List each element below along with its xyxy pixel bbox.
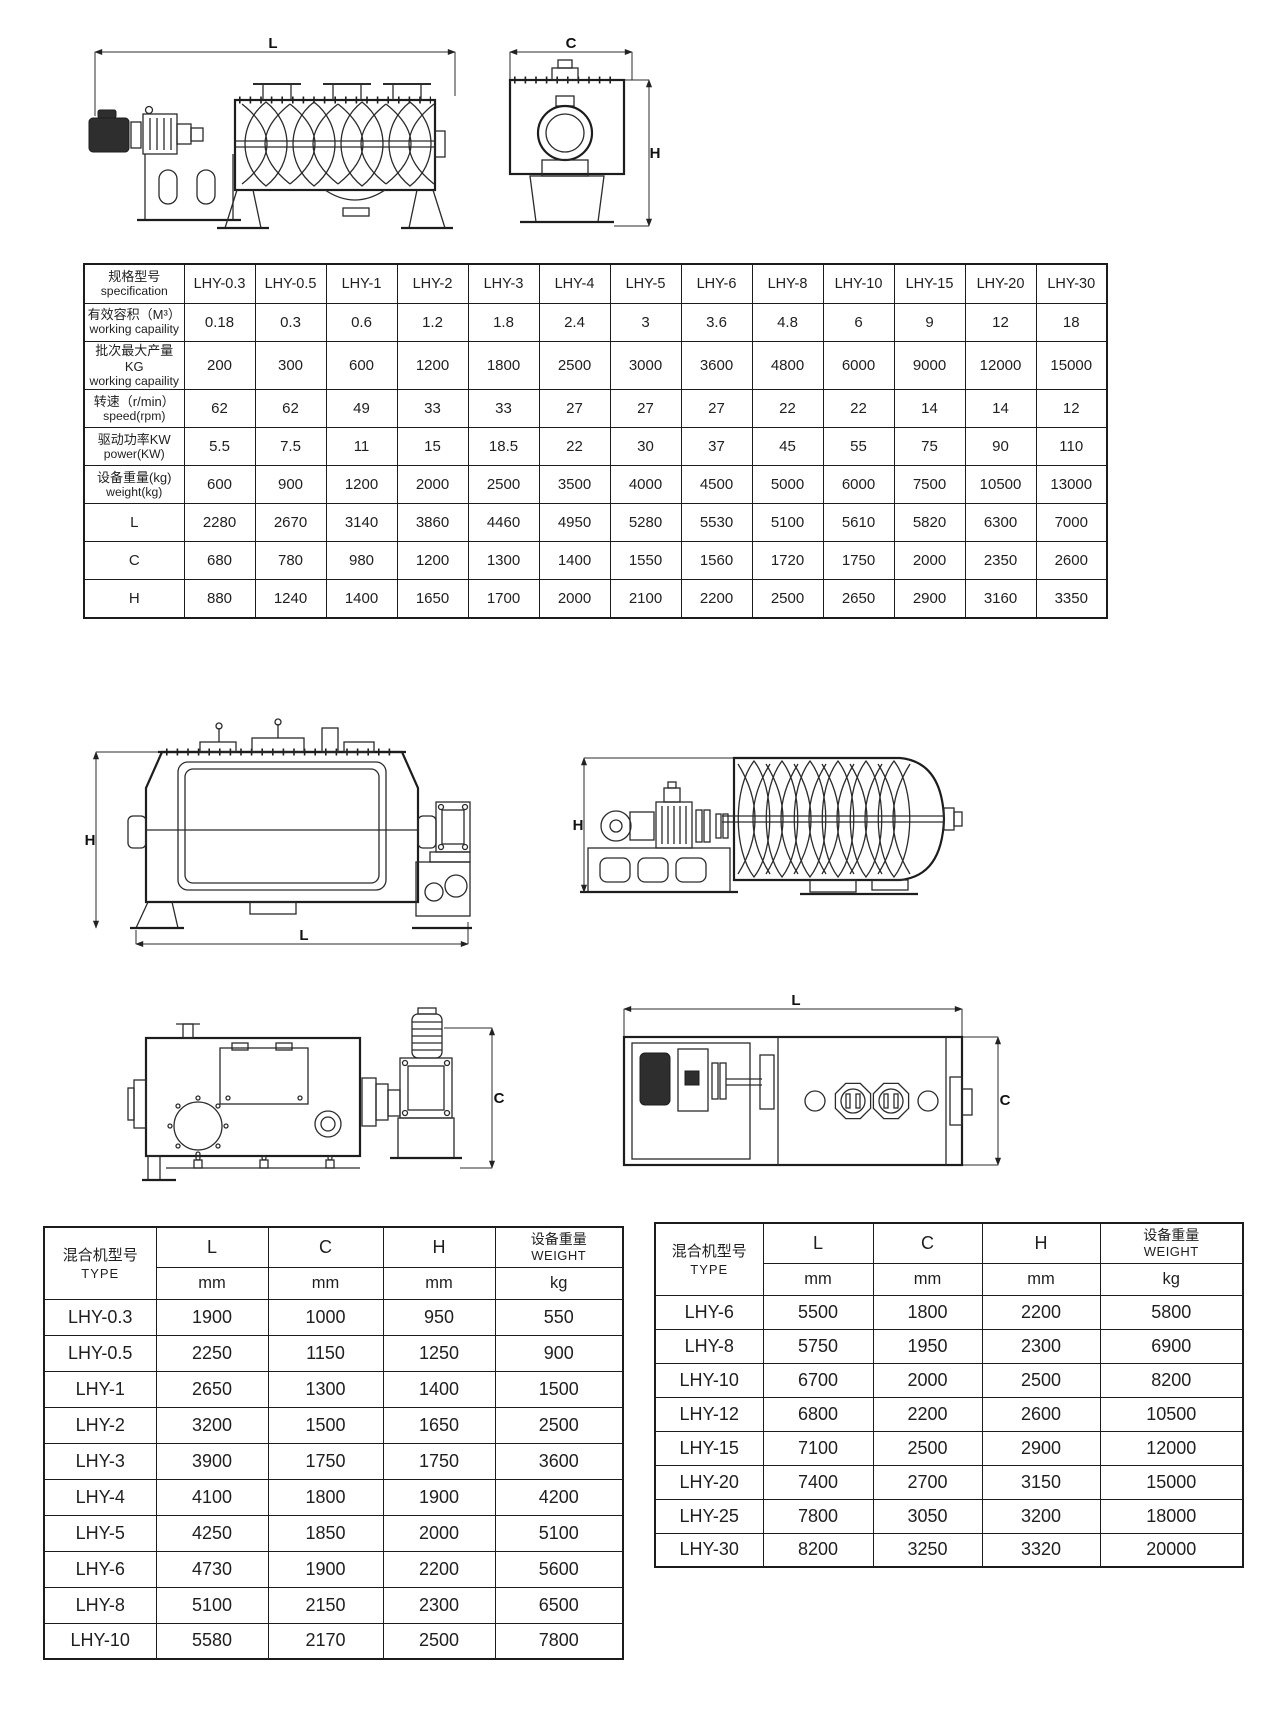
value-cell: 6900 — [1100, 1329, 1243, 1363]
dim-col-l: L — [156, 1227, 268, 1267]
spec-value-cell: 62 — [255, 390, 326, 428]
dim-label-width: C — [494, 1090, 505, 1107]
dimension-table-right: 混合机型号TYPELCH设备重量WEIGHTmmmmmmkgLHY-655001… — [654, 1222, 1244, 1568]
spec-value-cell: 3.6 — [681, 303, 752, 341]
spec-value-cell: 110 — [1036, 428, 1107, 466]
dim-label-width: C — [566, 35, 577, 52]
spec-corner-cell: 规格型号specification — [84, 264, 184, 303]
table-row: LHY-1268002200260010500 — [655, 1397, 1243, 1431]
spec-data-row: 有效容积（M³）working capaility0.180.30.61.21.… — [84, 303, 1107, 341]
spec-value-cell: 12000 — [965, 341, 1036, 390]
model-cell: LHY-0.3 — [44, 1299, 156, 1335]
spec-value-cell: 18 — [1036, 303, 1107, 341]
spec-value-cell: 2.4 — [539, 303, 610, 341]
datasheet-page: L — [0, 0, 1280, 1729]
model-cell: LHY-5 — [44, 1515, 156, 1551]
spec-value-cell: 27 — [610, 390, 681, 428]
value-cell: 2000 — [873, 1363, 982, 1397]
spec-header-row: 规格型号specificationLHY-0.3LHY-0.5LHY-1LHY-… — [84, 264, 1107, 303]
value-cell: 2200 — [383, 1551, 495, 1587]
dim-type-header: 混合机型号TYPE — [44, 1227, 156, 1299]
value-cell: 5100 — [495, 1515, 623, 1551]
table-row: LHY-2074002700315015000 — [655, 1465, 1243, 1499]
value-cell: 18000 — [1100, 1499, 1243, 1533]
table-row: LHY-2578003050320018000 — [655, 1499, 1243, 1533]
spec-row-label: H — [84, 580, 184, 618]
drawing-top-end-view: C H — [494, 36, 662, 236]
model-cell: LHY-3 — [44, 1443, 156, 1479]
value-cell: 1900 — [383, 1479, 495, 1515]
spec-value-cell: 880 — [184, 580, 255, 618]
spec-value-cell: 27 — [681, 390, 752, 428]
value-cell: 2500 — [383, 1623, 495, 1659]
spec-value-cell: 900 — [255, 466, 326, 504]
value-cell: 2900 — [982, 1431, 1100, 1465]
dim-header-row: 混合机型号TYPELCH设备重量WEIGHT — [44, 1227, 623, 1267]
motor-icon — [640, 1053, 670, 1105]
table-row: LHY-65500180022005800 — [655, 1295, 1243, 1329]
spec-row-label: 有效容积（M³）working capaility — [84, 303, 184, 341]
table-row: LHY-105580217025007800 — [44, 1623, 623, 1659]
spec-value-cell: 1240 — [255, 580, 326, 618]
value-cell: 20000 — [1100, 1533, 1243, 1567]
table-row: LHY-85750195023006900 — [655, 1329, 1243, 1363]
value-cell: 1750 — [383, 1443, 495, 1479]
model-cell: LHY-10 — [655, 1363, 763, 1397]
spec-value-cell: 1550 — [610, 542, 681, 580]
spec-model-header: LHY-5 — [610, 264, 681, 303]
spec-value-cell: 1200 — [397, 341, 468, 390]
value-cell: 1900 — [156, 1299, 268, 1335]
spec-model-header: LHY-1 — [326, 264, 397, 303]
dim-label-length: L — [791, 992, 800, 1009]
value-cell: 2300 — [982, 1329, 1100, 1363]
model-cell: LHY-12 — [655, 1397, 763, 1431]
value-cell: 7800 — [763, 1499, 873, 1533]
value-cell: 950 — [383, 1299, 495, 1335]
value-cell: 3320 — [982, 1533, 1100, 1567]
spec-value-cell: 2000 — [894, 542, 965, 580]
value-cell: 5800 — [1100, 1295, 1243, 1329]
spec-value-cell: 2200 — [681, 580, 752, 618]
value-cell: 7100 — [763, 1431, 873, 1465]
manhole-flange-icon — [174, 1102, 222, 1150]
spec-value-cell: 0.18 — [184, 303, 255, 341]
spec-value-cell: 1720 — [752, 542, 823, 580]
value-cell: 1000 — [268, 1299, 383, 1335]
value-cell: 3600 — [495, 1443, 623, 1479]
value-cell: 5750 — [763, 1329, 873, 1363]
value-cell: 8200 — [763, 1533, 873, 1567]
spec-value-cell: 4.8 — [752, 303, 823, 341]
spec-value-cell: 7000 — [1036, 504, 1107, 542]
spec-value-cell: 45 — [752, 428, 823, 466]
spec-model-header: LHY-8 — [752, 264, 823, 303]
spec-value-cell: 7500 — [894, 466, 965, 504]
unit-kg: kg — [1100, 1263, 1243, 1295]
spec-value-cell: 6300 — [965, 504, 1036, 542]
spec-model-header: LHY-15 — [894, 264, 965, 303]
spec-data-row: L228026703140386044604950528055305100561… — [84, 504, 1107, 542]
value-cell: 1800 — [268, 1479, 383, 1515]
spec-value-cell: 13000 — [1036, 466, 1107, 504]
spec-value-cell: 12 — [965, 303, 1036, 341]
value-cell: 3250 — [873, 1533, 982, 1567]
value-cell: 1900 — [268, 1551, 383, 1587]
spec-value-cell: 3350 — [1036, 580, 1107, 618]
value-cell: 5600 — [495, 1551, 623, 1587]
value-cell: 2650 — [156, 1371, 268, 1407]
value-cell: 10500 — [1100, 1397, 1243, 1431]
value-cell: 6800 — [763, 1397, 873, 1431]
spec-value-cell: 3500 — [539, 466, 610, 504]
table-row: LHY-64730190022005600 — [44, 1551, 623, 1587]
spec-value-cell: 12 — [1036, 390, 1107, 428]
value-cell: 8200 — [1100, 1363, 1243, 1397]
spec-value-cell: 2100 — [610, 580, 681, 618]
model-cell: LHY-6 — [655, 1295, 763, 1329]
spec-data-row: H880124014001650170020002100220025002650… — [84, 580, 1107, 618]
value-cell: 5100 — [156, 1587, 268, 1623]
spec-value-cell: 2000 — [539, 580, 610, 618]
value-cell: 1800 — [873, 1295, 982, 1329]
spec-row-label: 批次最大产量KGworking capaility — [84, 341, 184, 390]
spec-value-cell: 49 — [326, 390, 397, 428]
dim-col-h: H — [982, 1223, 1100, 1263]
spec-value-cell: 2650 — [823, 580, 894, 618]
spec-data-row: 转速（r/min）speed(rpm)626249333327272722221… — [84, 390, 1107, 428]
spec-model-header: LHY-20 — [965, 264, 1036, 303]
spec-value-cell: 14 — [965, 390, 1036, 428]
spec-value-cell: 2600 — [1036, 542, 1107, 580]
table-row: LHY-23200150016502500 — [44, 1407, 623, 1443]
spec-value-cell: 980 — [326, 542, 397, 580]
spec-model-header: LHY-0.3 — [184, 264, 255, 303]
drawing-low-plan-view: L C — [610, 995, 1012, 1191]
spec-model-header: LHY-4 — [539, 264, 610, 303]
table-row: LHY-106700200025008200 — [655, 1363, 1243, 1397]
model-cell: LHY-10 — [44, 1623, 156, 1659]
value-cell: 3200 — [982, 1499, 1100, 1533]
spec-value-cell: 6 — [823, 303, 894, 341]
value-cell: 1500 — [495, 1371, 623, 1407]
value-cell: 7800 — [495, 1623, 623, 1659]
spec-value-cell: 3860 — [397, 504, 468, 542]
value-cell: 2300 — [383, 1587, 495, 1623]
value-cell: 2600 — [982, 1397, 1100, 1431]
spec-value-cell: 1200 — [326, 466, 397, 504]
spec-model-header: LHY-0.5 — [255, 264, 326, 303]
spec-value-cell: 0.6 — [326, 303, 397, 341]
value-cell: 4250 — [156, 1515, 268, 1551]
spec-model-header: LHY-30 — [1036, 264, 1107, 303]
model-cell: LHY-25 — [655, 1499, 763, 1533]
value-cell: 2500 — [495, 1407, 623, 1443]
spec-value-cell: 22 — [823, 390, 894, 428]
spec-value-cell: 1560 — [681, 542, 752, 580]
paddle-hub-icon — [835, 1083, 908, 1118]
model-cell: LHY-4 — [44, 1479, 156, 1515]
drum-front — [178, 762, 386, 890]
value-cell: 15000 — [1100, 1465, 1243, 1499]
model-cell: LHY-2 — [44, 1407, 156, 1443]
spec-value-cell: 1.8 — [468, 303, 539, 341]
dim-col-h: H — [383, 1227, 495, 1267]
dim-label-length: L — [299, 927, 308, 944]
spec-value-cell: 11 — [326, 428, 397, 466]
spec-value-cell: 22 — [752, 390, 823, 428]
spec-value-cell: 5820 — [894, 504, 965, 542]
value-cell: 1300 — [268, 1371, 383, 1407]
spec-row-label: 转速（r/min）speed(rpm) — [84, 390, 184, 428]
value-cell: 4730 — [156, 1551, 268, 1587]
motor-icon — [601, 811, 631, 841]
spec-value-cell: 4800 — [752, 341, 823, 390]
spec-data-row: 设备重量(kg)weight(kg)6009001200200025003500… — [84, 466, 1107, 504]
spec-value-cell: 1800 — [468, 341, 539, 390]
value-cell: 2150 — [268, 1587, 383, 1623]
value-cell: 12000 — [1100, 1431, 1243, 1465]
table-row: LHY-1571002500290012000 — [655, 1431, 1243, 1465]
dim-col-weight: 设备重量WEIGHT — [1100, 1223, 1243, 1263]
spec-value-cell: 9 — [894, 303, 965, 341]
spec-value-cell: 2670 — [255, 504, 326, 542]
value-cell: 2200 — [982, 1295, 1100, 1329]
spec-value-cell: 3160 — [965, 580, 1036, 618]
table-row: LHY-12650130014001500 — [44, 1371, 623, 1407]
model-cell: LHY-20 — [655, 1465, 763, 1499]
spec-value-cell: 2500 — [752, 580, 823, 618]
spec-value-cell: 200 — [184, 341, 255, 390]
value-cell: 2250 — [156, 1335, 268, 1371]
spec-model-header: LHY-10 — [823, 264, 894, 303]
spec-value-cell: 62 — [184, 390, 255, 428]
spec-row-label: 设备重量(kg)weight(kg) — [84, 466, 184, 504]
value-cell: 4100 — [156, 1479, 268, 1515]
motor-icon — [89, 118, 129, 152]
spec-value-cell: 90 — [965, 428, 1036, 466]
spec-data-row: 批次最大产量KGworking capaility200300600120018… — [84, 341, 1107, 390]
model-cell: LHY-8 — [655, 1329, 763, 1363]
spec-value-cell: 5530 — [681, 504, 752, 542]
spec-value-cell: 5100 — [752, 504, 823, 542]
value-cell: 3050 — [873, 1499, 982, 1533]
spec-value-cell: 33 — [397, 390, 468, 428]
spec-value-cell: 27 — [539, 390, 610, 428]
spec-value-cell: 3000 — [610, 341, 681, 390]
spec-value-cell: 2500 — [539, 341, 610, 390]
value-cell: 2500 — [873, 1431, 982, 1465]
spec-value-cell: 4000 — [610, 466, 681, 504]
spec-value-cell: 680 — [184, 542, 255, 580]
value-cell: 3150 — [982, 1465, 1100, 1499]
spec-value-cell: 14 — [894, 390, 965, 428]
spec-model-header: LHY-3 — [468, 264, 539, 303]
spec-model-header: LHY-6 — [681, 264, 752, 303]
spec-value-cell: 4950 — [539, 504, 610, 542]
spec-row-label: C — [84, 542, 184, 580]
dim-col-l: L — [763, 1223, 873, 1263]
model-cell: LHY-0.5 — [44, 1335, 156, 1371]
value-cell: 550 — [495, 1299, 623, 1335]
spec-value-cell: 15000 — [1036, 341, 1107, 390]
spec-value-cell: 3600 — [681, 341, 752, 390]
model-cell: LHY-15 — [655, 1431, 763, 1465]
spec-row-label: 驱动功率KWpower(KW) — [84, 428, 184, 466]
spec-value-cell: 5610 — [823, 504, 894, 542]
spec-value-cell: 9000 — [894, 341, 965, 390]
value-cell: 1850 — [268, 1515, 383, 1551]
spec-data-row: C680780980120013001400155015601720175020… — [84, 542, 1107, 580]
spec-value-cell: 1650 — [397, 580, 468, 618]
unit-mm: mm — [982, 1263, 1100, 1295]
value-cell: 900 — [495, 1335, 623, 1371]
value-cell: 1500 — [268, 1407, 383, 1443]
spec-value-cell: 15 — [397, 428, 468, 466]
dim-label-height: H — [573, 817, 584, 834]
model-cell: LHY-6 — [44, 1551, 156, 1587]
value-cell: 3200 — [156, 1407, 268, 1443]
spec-value-cell: 5000 — [752, 466, 823, 504]
table-row: LHY-54250185020005100 — [44, 1515, 623, 1551]
unit-kg: kg — [495, 1267, 623, 1299]
value-cell: 1250 — [383, 1335, 495, 1371]
spec-value-cell: 0.3 — [255, 303, 326, 341]
spec-value-cell: 1400 — [539, 542, 610, 580]
spec-value-cell: 6000 — [823, 466, 894, 504]
table-row: LHY-0.5225011501250900 — [44, 1335, 623, 1371]
value-cell: 5580 — [156, 1623, 268, 1659]
spec-value-cell: 2350 — [965, 542, 1036, 580]
value-cell: 3900 — [156, 1443, 268, 1479]
spec-value-cell: 75 — [894, 428, 965, 466]
spec-value-cell: 4500 — [681, 466, 752, 504]
spec-table: 规格型号specificationLHY-0.3LHY-0.5LHY-1LHY-… — [83, 263, 1108, 619]
spec-value-cell: 300 — [255, 341, 326, 390]
value-cell: 7400 — [763, 1465, 873, 1499]
spec-value-cell: 2500 — [468, 466, 539, 504]
gearbox-icon — [143, 114, 177, 154]
spec-value-cell: 3140 — [326, 504, 397, 542]
value-cell: 2170 — [268, 1623, 383, 1659]
unit-mm: mm — [156, 1267, 268, 1299]
spec-value-cell: 18.5 — [468, 428, 539, 466]
spec-value-cell: 5280 — [610, 504, 681, 542]
value-cell: 2200 — [873, 1397, 982, 1431]
spec-row-label: L — [84, 504, 184, 542]
dim-label-length: L — [268, 35, 277, 52]
value-cell: 2000 — [383, 1515, 495, 1551]
dim-header-row: 混合机型号TYPELCH设备重量WEIGHT — [655, 1223, 1243, 1263]
spec-data-row: 驱动功率KWpower(KW)5.57.5111518.522303745557… — [84, 428, 1107, 466]
drawing-low-side-view: C — [128, 1008, 506, 1196]
spec-value-cell: 3 — [610, 303, 681, 341]
spec-value-cell: 22 — [539, 428, 610, 466]
spec-value-cell: 1750 — [823, 542, 894, 580]
table-row: LHY-85100215023006500 — [44, 1587, 623, 1623]
spec-value-cell: 1700 — [468, 580, 539, 618]
spec-value-cell: 55 — [823, 428, 894, 466]
table-row: LHY-33900175017503600 — [44, 1443, 623, 1479]
dim-label-height: H — [85, 832, 96, 849]
spec-value-cell: 1300 — [468, 542, 539, 580]
value-cell: 6500 — [495, 1587, 623, 1623]
spec-value-cell: 4460 — [468, 504, 539, 542]
spec-model-header: LHY-2 — [397, 264, 468, 303]
dim-col-c: C — [873, 1223, 982, 1263]
value-cell: 5500 — [763, 1295, 873, 1329]
spec-value-cell: 600 — [326, 341, 397, 390]
dim-label-width: C — [1000, 1092, 1011, 1109]
spec-value-cell: 1200 — [397, 542, 468, 580]
spec-value-cell: 2000 — [397, 466, 468, 504]
spec-value-cell: 6000 — [823, 341, 894, 390]
spec-value-cell: 10500 — [965, 466, 1036, 504]
spec-value-cell: 1400 — [326, 580, 397, 618]
spec-value-cell: 780 — [255, 542, 326, 580]
spec-value-cell: 2900 — [894, 580, 965, 618]
value-cell: 1750 — [268, 1443, 383, 1479]
value-cell: 1950 — [873, 1329, 982, 1363]
spec-value-cell: 30 — [610, 428, 681, 466]
value-cell: 6700 — [763, 1363, 873, 1397]
value-cell: 2700 — [873, 1465, 982, 1499]
table-row: LHY-44100180019004200 — [44, 1479, 623, 1515]
table-row: LHY-0.319001000950550 — [44, 1299, 623, 1335]
dim-col-c: C — [268, 1227, 383, 1267]
dim-label-height: H — [650, 145, 661, 162]
model-cell: LHY-30 — [655, 1533, 763, 1567]
dim-col-weight: 设备重量WEIGHT — [495, 1227, 623, 1267]
model-cell: LHY-1 — [44, 1371, 156, 1407]
dimension-table-left: 混合机型号TYPELCH设备重量WEIGHTmmmmmmkgLHY-0.3190… — [43, 1226, 624, 1660]
dim-type-header: 混合机型号TYPE — [655, 1223, 763, 1295]
drawing-mid-front-view: H L — [82, 700, 472, 952]
model-cell: LHY-8 — [44, 1587, 156, 1623]
value-cell: 4200 — [495, 1479, 623, 1515]
spec-value-cell: 600 — [184, 466, 255, 504]
unit-mm: mm — [383, 1267, 495, 1299]
spec-value-cell: 1.2 — [397, 303, 468, 341]
spec-value-cell: 33 — [468, 390, 539, 428]
value-cell: 1400 — [383, 1371, 495, 1407]
value-cell: 1150 — [268, 1335, 383, 1371]
spec-value-cell: 7.5 — [255, 428, 326, 466]
spec-value-cell: 37 — [681, 428, 752, 466]
spec-value-cell: 2280 — [184, 504, 255, 542]
drawing-top-side-view: L — [85, 36, 467, 236]
unit-mm: mm — [763, 1263, 873, 1295]
table-row: LHY-3082003250332020000 — [655, 1533, 1243, 1567]
drawing-mid-side-view: H — [572, 728, 974, 918]
unit-mm: mm — [268, 1267, 383, 1299]
spiral-ribbon-icon — [738, 761, 910, 877]
spiral-ribbon-icon — [242, 102, 434, 186]
spec-value-cell: 5.5 — [184, 428, 255, 466]
unit-mm: mm — [873, 1263, 982, 1295]
value-cell: 2500 — [982, 1363, 1100, 1397]
value-cell: 1650 — [383, 1407, 495, 1443]
